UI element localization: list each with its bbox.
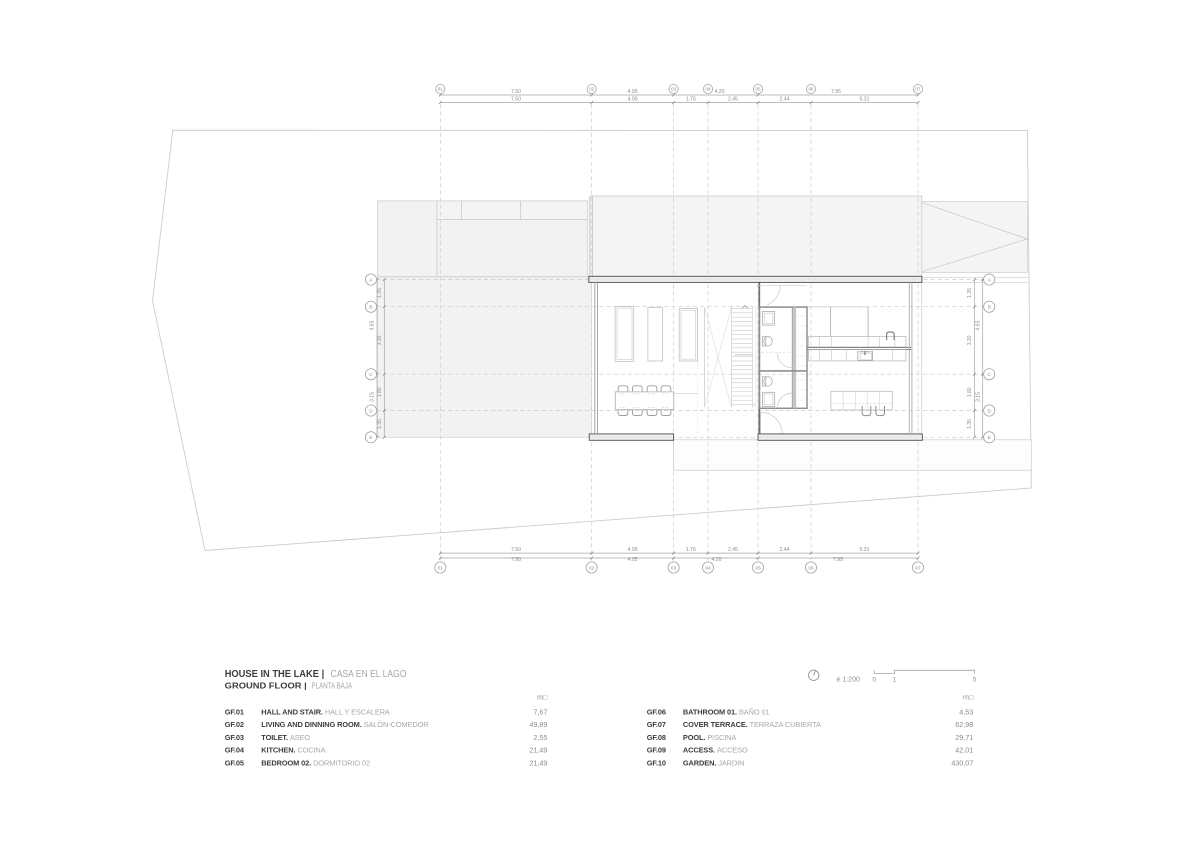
svg-text:7.50: 7.50 xyxy=(511,557,521,563)
svg-text:4.65: 4.65 xyxy=(369,320,375,330)
svg-text:GF.01: GF.01 xyxy=(225,708,244,717)
svg-text:7.50: 7.50 xyxy=(511,547,521,553)
svg-text:CASA EN EL LAGO: CASA EN EL LAGO xyxy=(331,669,407,680)
svg-text:4.05: 4.05 xyxy=(628,557,638,563)
svg-text:1.80: 1.80 xyxy=(967,387,973,397)
svg-text:HALL AND STAIR. HALL Y ESCALER: HALL AND STAIR. HALL Y ESCALERA xyxy=(261,708,390,717)
svg-text:04: 04 xyxy=(705,87,711,92)
svg-text:1.80: 1.80 xyxy=(377,387,383,397)
svg-text:C: C xyxy=(987,372,991,378)
svg-text:3.15: 3.15 xyxy=(975,392,981,402)
svg-text:2,55: 2,55 xyxy=(533,733,547,742)
svg-text:4.20: 4.20 xyxy=(714,89,724,95)
svg-text:5: 5 xyxy=(973,676,977,683)
svg-text:430,07: 430,07 xyxy=(951,758,973,767)
svg-text:05: 05 xyxy=(755,87,761,92)
svg-text:GF.02: GF.02 xyxy=(225,720,244,729)
svg-text:07: 07 xyxy=(915,565,921,571)
svg-text:0: 0 xyxy=(872,676,876,683)
svg-text:07: 07 xyxy=(915,87,921,92)
svg-text:2.44: 2.44 xyxy=(779,97,789,103)
svg-text:2.45: 2.45 xyxy=(728,97,738,103)
svg-text:05: 05 xyxy=(755,565,761,571)
svg-text:GF.06: GF.06 xyxy=(647,708,666,717)
svg-text:7.95: 7.95 xyxy=(831,89,841,95)
svg-text:KITCHEN. COCINA: KITCHEN. COCINA xyxy=(261,746,325,755)
svg-text:ACCESS. ACCESO: ACCESS. ACCESO xyxy=(683,746,748,755)
svg-text:e 1:200: e 1:200 xyxy=(837,676,860,683)
svg-text:D: D xyxy=(987,408,991,414)
svg-text:POOL. PISCINA: POOL. PISCINA xyxy=(683,733,736,742)
svg-text:GF.08: GF.08 xyxy=(647,733,666,742)
svg-text:4.65: 4.65 xyxy=(975,320,981,330)
svg-text:03: 03 xyxy=(671,565,677,571)
svg-text:m□: m□ xyxy=(537,693,548,702)
svg-text:4.05: 4.05 xyxy=(628,97,638,103)
svg-text:GF.03: GF.03 xyxy=(225,733,244,742)
svg-text:1.35: 1.35 xyxy=(377,419,383,429)
svg-text:GF.04: GF.04 xyxy=(225,746,245,755)
svg-text:1.75: 1.75 xyxy=(686,547,696,553)
svg-text:1.75: 1.75 xyxy=(686,97,696,103)
svg-text:03: 03 xyxy=(671,87,677,92)
svg-text:29,71: 29,71 xyxy=(955,733,973,742)
svg-text:62,98: 62,98 xyxy=(955,720,973,729)
svg-text:TOILET. ASEO: TOILET. ASEO xyxy=(261,733,310,742)
svg-text:4.20: 4.20 xyxy=(711,557,721,563)
svg-text:COVER TERRACE. TERRAZA CUBIERT: COVER TERRACE. TERRAZA CUBIERTA xyxy=(683,720,821,729)
svg-text:4,53: 4,53 xyxy=(959,708,973,717)
svg-text:5.31: 5.31 xyxy=(859,547,869,553)
svg-text:7,67: 7,67 xyxy=(533,708,547,717)
svg-text:GF.10: GF.10 xyxy=(647,758,666,767)
svg-text:E: E xyxy=(988,435,991,441)
svg-text:06: 06 xyxy=(808,565,814,571)
svg-text:02: 02 xyxy=(589,565,595,571)
svg-text:49,89: 49,89 xyxy=(529,720,547,729)
svg-text:7.50: 7.50 xyxy=(511,97,521,103)
svg-text:01: 01 xyxy=(438,87,444,92)
svg-text:GF.07: GF.07 xyxy=(647,720,666,729)
svg-text:1.35: 1.35 xyxy=(967,419,973,429)
svg-text:06: 06 xyxy=(808,87,814,92)
svg-text:1.35: 1.35 xyxy=(377,288,383,298)
svg-text:4.05: 4.05 xyxy=(628,89,638,95)
svg-text:02: 02 xyxy=(589,87,595,92)
svg-text:m□: m□ xyxy=(963,693,974,702)
svg-text:1.35: 1.35 xyxy=(967,288,973,298)
svg-text:1: 1 xyxy=(893,676,897,683)
svg-text:2.45: 2.45 xyxy=(728,547,738,553)
svg-text:C: C xyxy=(369,372,373,378)
svg-text:01: 01 xyxy=(438,565,444,571)
svg-text:GARDEN. JARDIN: GARDEN. JARDIN xyxy=(683,758,744,767)
svg-text:E: E xyxy=(369,435,372,441)
svg-text:LIVING AND DINNING ROOM. SALÓN: LIVING AND DINNING ROOM. SALÓN-COMEDOR xyxy=(261,720,428,729)
svg-text:42,01: 42,01 xyxy=(955,746,973,755)
svg-text:D: D xyxy=(369,408,373,414)
svg-text:BATHROOM 01. BAÑO 01: BATHROOM 01. BAÑO 01 xyxy=(683,708,770,717)
svg-text:7.95: 7.95 xyxy=(833,557,843,563)
svg-text:21,49: 21,49 xyxy=(529,758,547,767)
svg-text:3.30: 3.30 xyxy=(967,335,973,345)
svg-text:3.15: 3.15 xyxy=(369,392,375,402)
svg-text:B: B xyxy=(369,305,372,311)
svg-text:3.30: 3.30 xyxy=(377,335,383,345)
svg-text:GF.05: GF.05 xyxy=(225,758,244,767)
svg-text:2.44: 2.44 xyxy=(779,547,789,553)
svg-text:PLANTA BAJA: PLANTA BAJA xyxy=(312,680,353,690)
svg-text:21,49: 21,49 xyxy=(529,746,547,755)
svg-text:HOUSE IN THE LAKE |: HOUSE IN THE LAKE | xyxy=(225,669,325,680)
svg-text:B: B xyxy=(988,305,991,311)
svg-text:5.31: 5.31 xyxy=(859,97,869,103)
svg-text:GF.09: GF.09 xyxy=(647,746,666,755)
svg-text:4.05: 4.05 xyxy=(628,547,638,553)
svg-text:04: 04 xyxy=(705,565,711,571)
svg-text:7.50: 7.50 xyxy=(511,89,521,95)
svg-text:BEDROOM 02. DORMITORIO 02: BEDROOM 02. DORMITORIO 02 xyxy=(261,758,370,767)
svg-text:GROUND FLOOR |: GROUND FLOOR | xyxy=(225,680,307,690)
